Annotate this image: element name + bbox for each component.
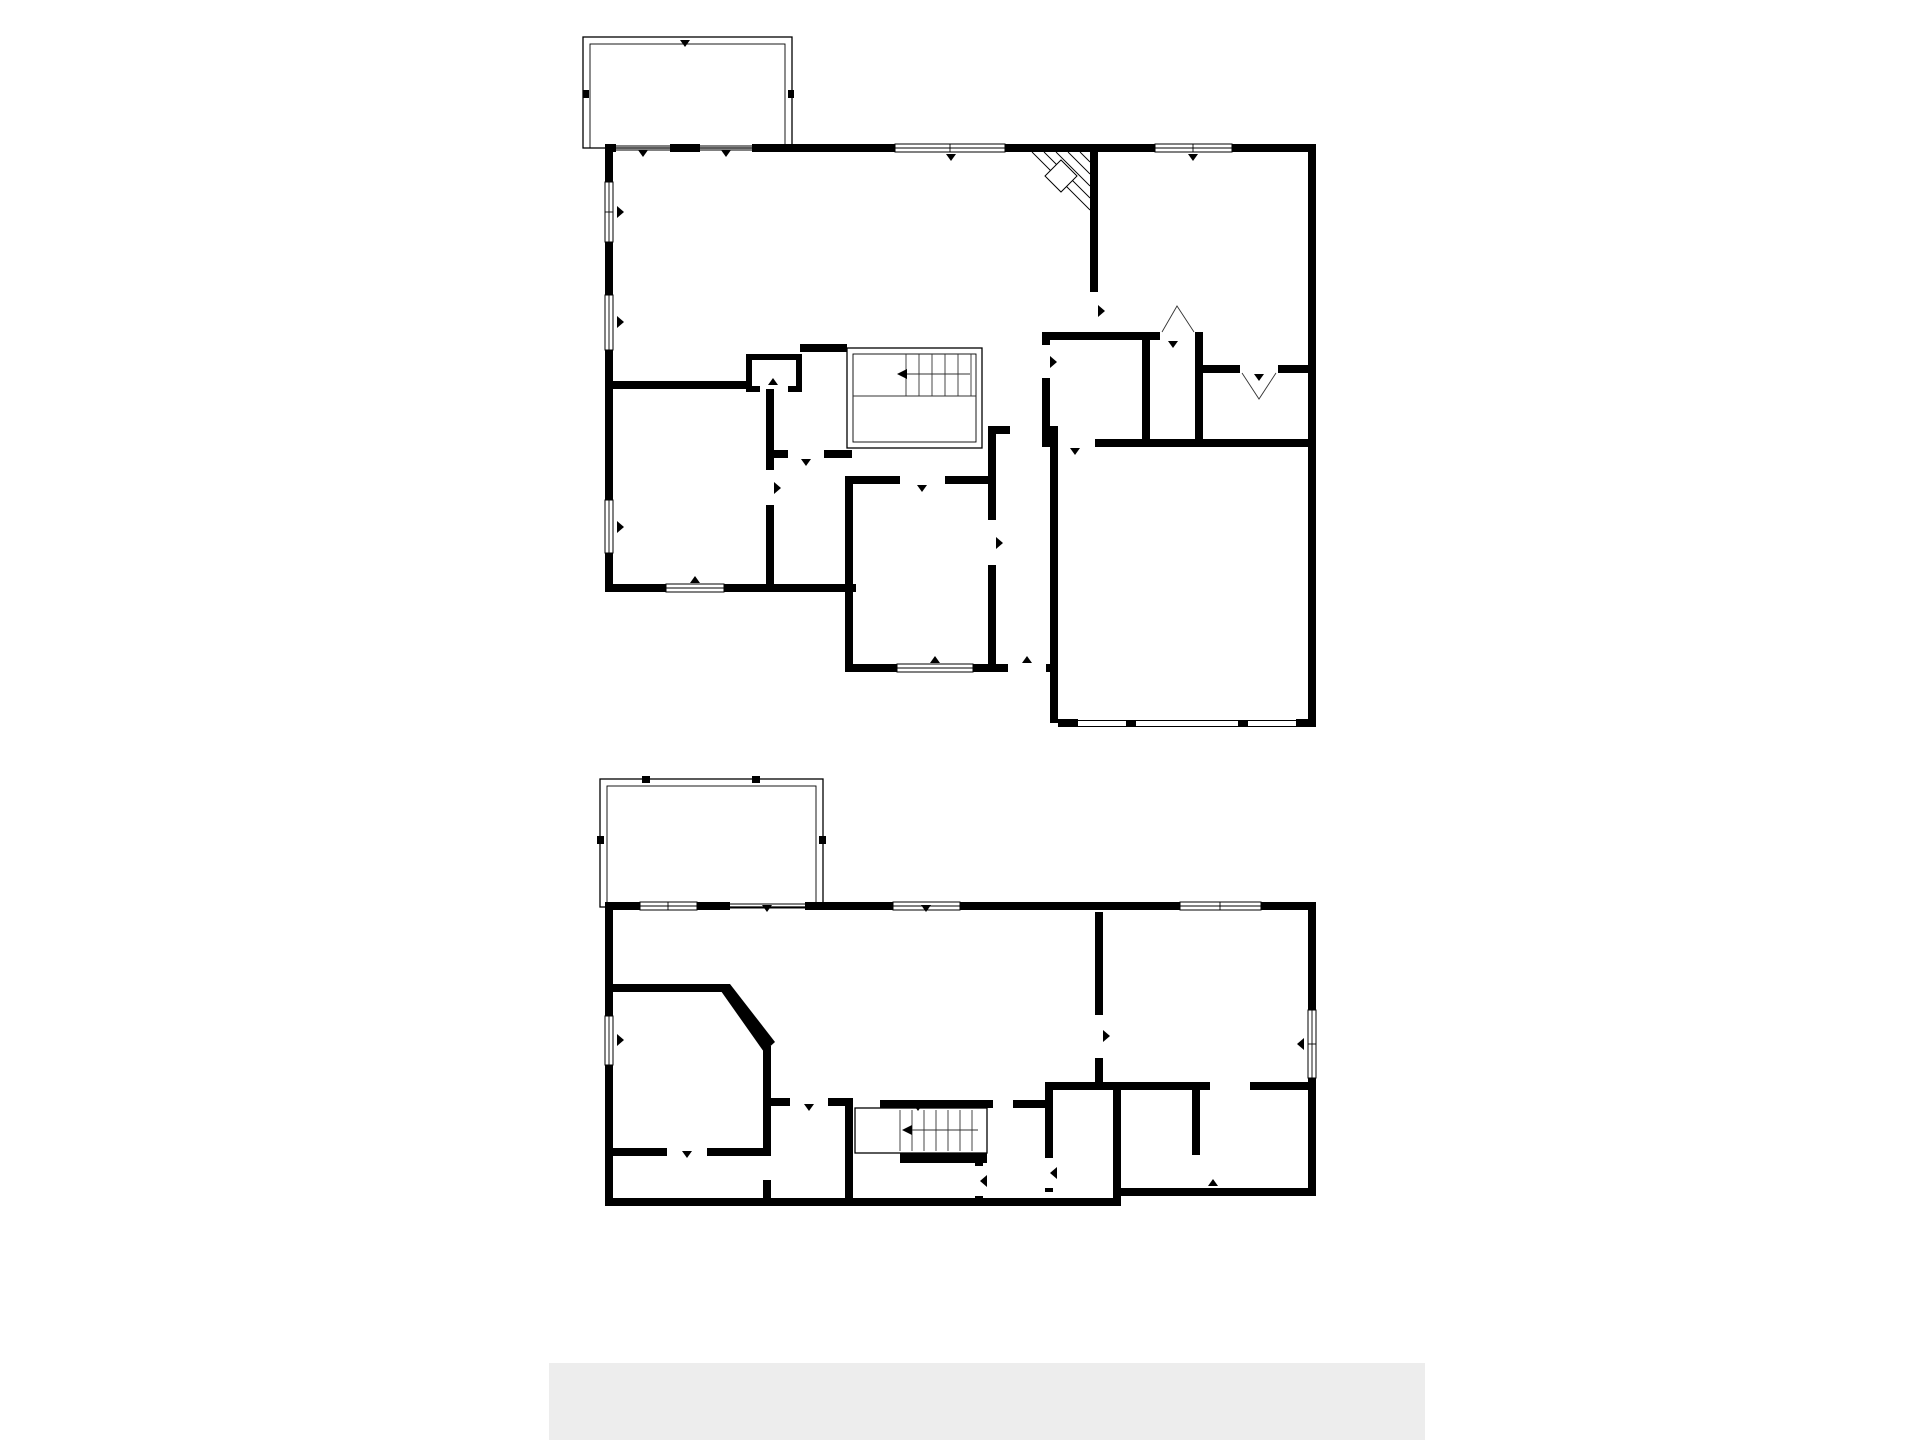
floor-plan-page (0, 0, 1920, 1440)
first-floor-walls (605, 144, 1316, 727)
door-ticks-basement (617, 905, 1304, 1187)
covered-patio-walls (597, 776, 826, 907)
basement-walls (605, 902, 1316, 1206)
floor-plan-drawing (0, 0, 1920, 1440)
stairs-icon (847, 348, 982, 448)
garage-door (1078, 721, 1296, 727)
bottom-bar (549, 1363, 1425, 1440)
basement-stairs-icon (855, 1108, 987, 1153)
windows-first-floor (605, 144, 1232, 672)
balcony-walls (583, 37, 794, 148)
fireplace-icon (1032, 152, 1090, 210)
door-leafs-first-floor (1162, 306, 1276, 399)
